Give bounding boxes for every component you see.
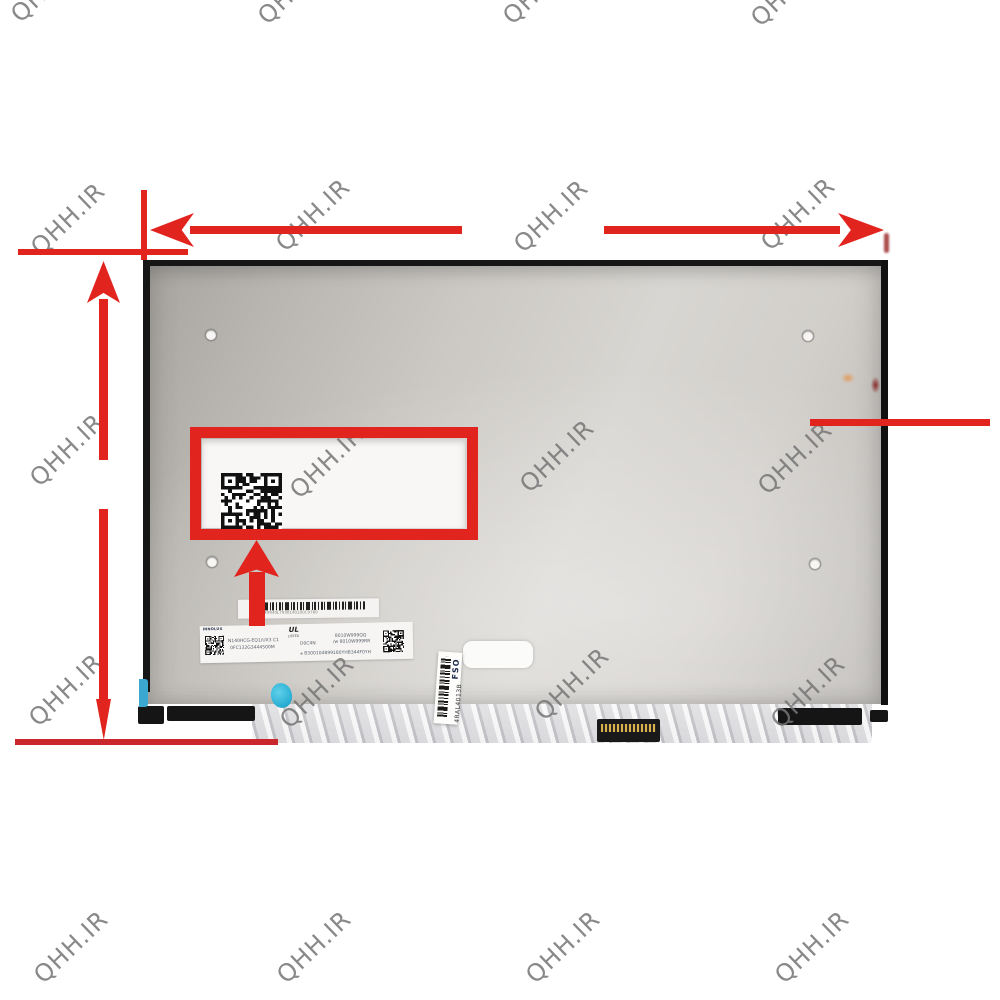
watermark-text: QHH.IR: [520, 905, 606, 989]
screw-hole-top-right: [803, 331, 813, 341]
watermark-text: QHH.IR: [508, 174, 594, 258]
product-photo-stage: EF0940L7930140100C9780 INNOLUX N140HCG-E…: [0, 0, 1000, 1000]
width-arrow-left-head: [150, 213, 194, 247]
watermark-text: QHH.IR: [252, 0, 338, 30]
part-number: 0FC132G3444500M: [230, 645, 275, 651]
height-dimension-bottom-line: [15, 739, 278, 745]
barcode-strip-code: EF0940L7930140100C9780: [262, 610, 318, 615]
watermark-text: QHH.IR: [23, 648, 109, 732]
screw-hole-mid-right: [810, 559, 820, 569]
label-right-line1: 8010W999QQ: [335, 633, 367, 639]
bottom-tab-right-1: [778, 708, 862, 725]
blank-rounded-label: [463, 641, 533, 668]
watermark-text: QHH.IR: [24, 408, 110, 492]
manufacturer-label: INNOLUX N140HCG-EQ1/UX3 C1 0FC132G344450…: [200, 622, 414, 663]
side-label-brand: FSO: [451, 658, 461, 680]
height-arrow-down-tip: [96, 699, 111, 740]
serial-text: B300104899180YHB344F0YH: [304, 650, 371, 656]
height-arrow-up-head: [87, 261, 120, 303]
panel-left-edge: [143, 260, 150, 692]
red-corner-mark: [884, 233, 889, 253]
panel-top-edge: [143, 260, 888, 266]
watermark-text: QHH.IR: [497, 0, 583, 30]
watermark-text: QHH.IR: [769, 905, 855, 989]
edp-connector: [597, 719, 660, 742]
red-smudge: [871, 377, 880, 393]
orange-smudge: [841, 373, 855, 383]
watermark-text: QHH.IR: [755, 172, 841, 256]
bottom-tab-right-2: [870, 710, 888, 722]
connector-pins: [601, 724, 656, 732]
right-side-marker-line: [810, 419, 990, 426]
circled-plus-icon: ⊕: [300, 652, 303, 656]
panel-right-edge: [881, 260, 888, 705]
screw-hole-mid-left: [207, 557, 217, 567]
watermark-text: QHH.IR: [271, 905, 357, 989]
brand-text: INNOLUX: [203, 627, 223, 631]
qr-code-icon: [205, 636, 224, 655]
ul-logo-subtext: LISTED: [288, 634, 299, 638]
watermark-text: QHH.IR: [745, 0, 831, 32]
model-number: N140HCG-EQ1/UX3 C1: [228, 638, 279, 644]
height-dimension-top-line: [18, 249, 188, 255]
watermark-text: QHH.IR: [270, 173, 356, 257]
blue-edge-tab: [139, 679, 148, 707]
label-serial-line: ⊕ B300104899180YHB344F0YH: [300, 650, 371, 656]
qr-code-icon: [383, 630, 404, 652]
qr-pointer-arrow-shaft: [249, 572, 265, 626]
barcode-icon: [437, 656, 451, 717]
label-right-line2: /w 8010W999RR: [333, 639, 370, 645]
ul-logo: UL: [289, 626, 299, 634]
height-arrow-lower-shaft: [99, 509, 108, 701]
qr-highlight-box: [190, 427, 478, 540]
width-arrow-right-head: [838, 213, 884, 247]
side-barcode-label: FSO 4RAL4013B: [434, 651, 463, 724]
label-center-code: D0C4N: [300, 641, 316, 646]
screw-hole-top-left: [206, 330, 216, 340]
watermark-text: QHH.IR: [5, 0, 91, 28]
height-arrow-upper-shaft: [99, 299, 108, 460]
watermark-text: QHH.IR: [28, 905, 114, 989]
width-arrow-left-shaft: [190, 226, 462, 234]
width-arrow-right-shaft: [604, 226, 840, 234]
bottom-tab-left-1: [138, 706, 164, 724]
bottom-tab-left-2: [167, 706, 255, 721]
